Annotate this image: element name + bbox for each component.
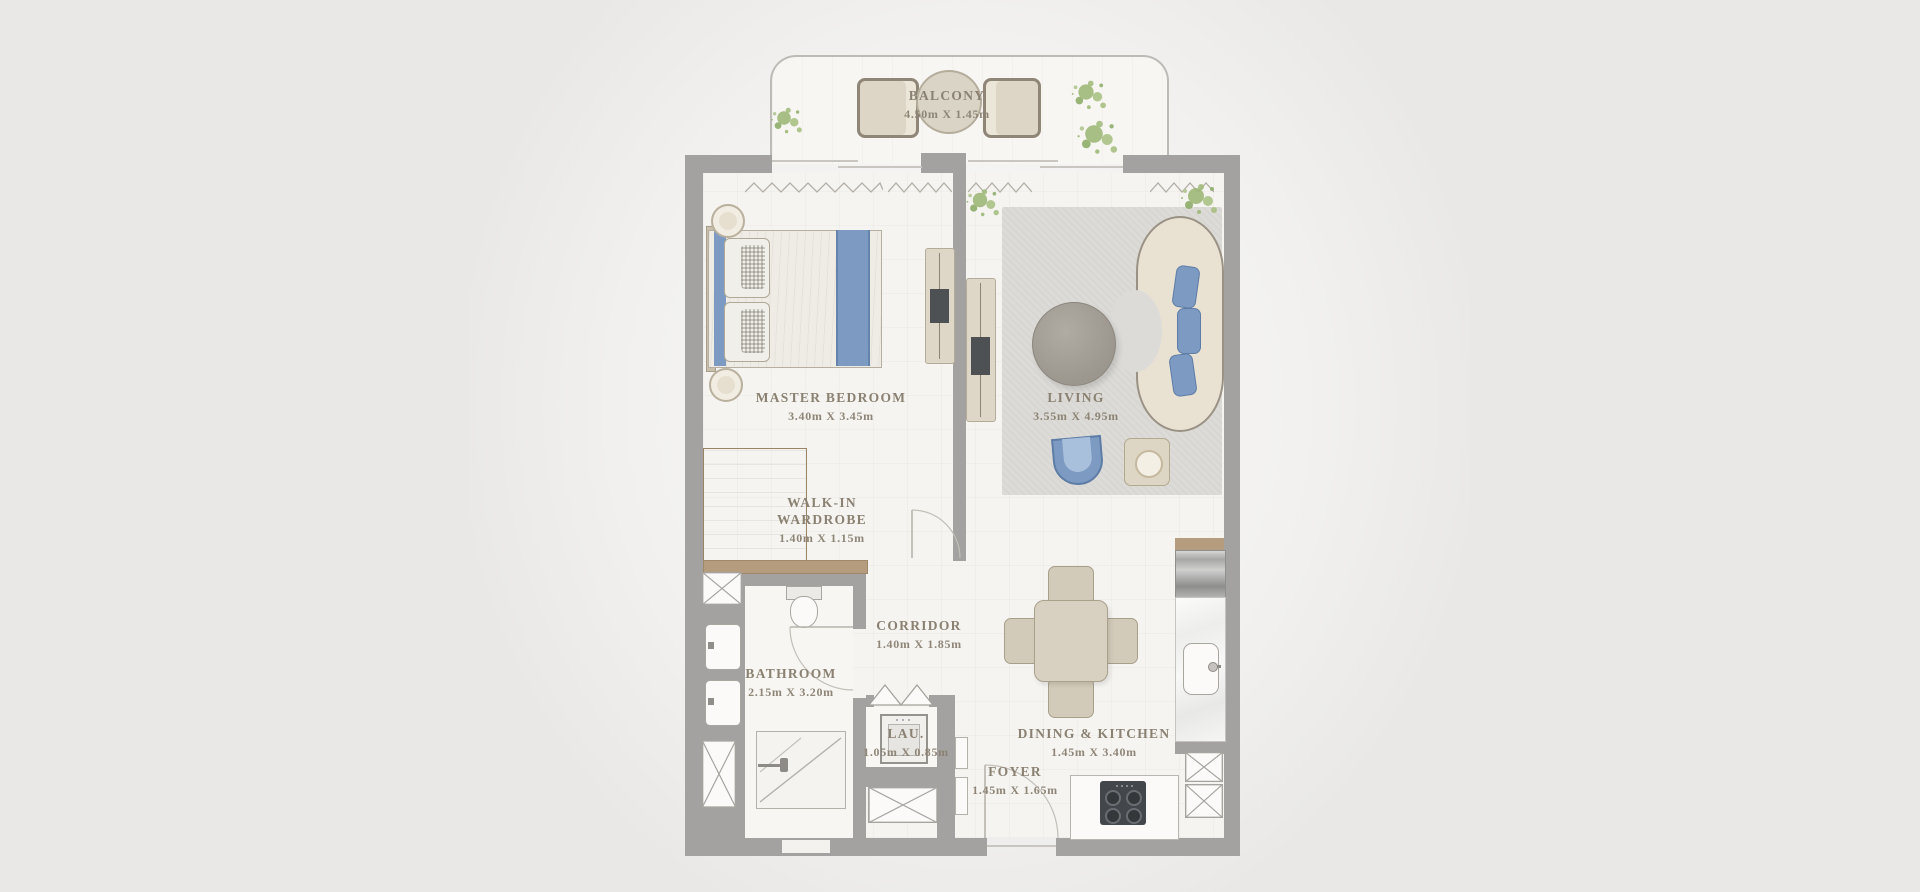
room-dims: 3.40m X 3.45m	[756, 409, 907, 424]
burner-icon	[1126, 808, 1142, 824]
label-foyer: FOYER 1.45m X 1.65m	[972, 764, 1058, 798]
cooktop-knob	[1131, 785, 1133, 787]
shaft-xbox	[1185, 752, 1223, 782]
shower-fixture-icon	[780, 758, 788, 772]
room-dims: 4.50m X 1.45m	[904, 107, 990, 122]
wall-bottom-left	[685, 838, 987, 856]
label-dining-kitchen: DINING & KITCHEN 1.45m X 3.40m	[1018, 726, 1171, 760]
wall-bottom-right	[1056, 838, 1240, 856]
curtain-icon	[745, 180, 883, 195]
room-name: DINING & KITCHEN	[1018, 726, 1171, 743]
bathroom-sink	[705, 680, 741, 726]
closet-door-panel	[955, 737, 968, 769]
balcony-lounge-chair-right	[983, 78, 1041, 138]
closet-door-panel	[955, 777, 968, 815]
cooktop-knob	[1116, 785, 1118, 787]
floorplan-canvas: BALCONY 4.50m X 1.45m MASTER BEDROOM 3.4…	[0, 0, 1920, 892]
sofa-curve-cutout	[1108, 290, 1162, 372]
burner-icon	[1105, 808, 1121, 824]
room-name: CORRIDOR	[876, 618, 962, 635]
tv-icon	[971, 337, 990, 375]
faucet-icon	[708, 698, 714, 705]
bifold-door-icon	[868, 681, 934, 707]
side-table-bowl	[1135, 450, 1163, 478]
room-dims: 1.40m X 1.85m	[876, 637, 962, 652]
bed-pillow	[724, 238, 770, 298]
curtain-icon	[888, 180, 952, 195]
wall-right	[1224, 155, 1240, 856]
nightstand	[709, 368, 743, 402]
wall-top-right	[1123, 155, 1240, 173]
sliding-door-line	[838, 166, 922, 168]
wall-bathroom-right-upper	[853, 572, 866, 629]
bed-pillow	[724, 302, 770, 362]
wall-niche	[782, 840, 830, 853]
label-balcony: BALCONY 4.50m X 1.45m	[904, 88, 990, 122]
washer-button	[902, 719, 904, 721]
room-name: LIVING	[1033, 390, 1119, 407]
plant-icon	[1078, 84, 1093, 99]
label-corridor: CORRIDOR 1.40m X 1.85m	[876, 618, 962, 652]
wall-left	[685, 155, 703, 856]
bed-blue-runner	[836, 230, 870, 366]
fridge	[1175, 550, 1226, 599]
kitchen-sink	[1183, 643, 1219, 695]
shaft-xbox	[702, 740, 736, 808]
cooktop-knob	[1126, 785, 1128, 787]
kitchen-cabinet-strip	[1175, 538, 1224, 550]
nightstand	[711, 204, 745, 238]
coffee-table	[1032, 302, 1116, 386]
room-dims: 3.55m X 4.95m	[1033, 409, 1119, 424]
wall-bathroom-right-lower	[853, 698, 866, 838]
sliding-door-line	[1040, 166, 1123, 168]
room-name: BATHROOM	[745, 666, 836, 683]
cooktop	[1100, 781, 1146, 825]
label-laundry: LAU. 1.05m X 0.85m	[863, 726, 949, 760]
bathroom-sink	[705, 624, 741, 670]
dining-table	[1034, 600, 1108, 682]
wall-laundry-bottom	[866, 767, 937, 787]
burner-icon	[1105, 790, 1121, 806]
faucet-base-icon	[1208, 662, 1218, 672]
entry-threshold-line	[987, 845, 1056, 847]
room-name: MASTER BEDROOM	[756, 390, 907, 407]
pillow-knit-texture	[741, 309, 765, 353]
tv-console-bedroom	[925, 248, 955, 364]
tv-icon	[930, 289, 949, 323]
label-walk-in-wardrobe: WALK-IN WARDROBE 1.40m X 1.15m	[763, 495, 881, 546]
label-living: LIVING 3.55m X 4.95m	[1033, 390, 1119, 424]
plant-icon	[1188, 188, 1204, 204]
pillow-knit-texture	[741, 245, 765, 289]
wardrobe-door-arc	[910, 508, 964, 562]
faucet-icon	[708, 642, 714, 649]
room-dims: 1.40m X 1.15m	[763, 531, 881, 546]
washer-button	[908, 719, 910, 721]
sliding-door-line	[772, 160, 858, 162]
label-bathroom: BATHROOM 2.15m X 3.20m	[745, 666, 836, 700]
plant-icon	[973, 193, 987, 207]
room-name: BALCONY	[904, 88, 990, 105]
dining-chair	[1048, 678, 1094, 718]
room-name: FOYER	[972, 764, 1058, 781]
sliding-door-line	[968, 160, 1058, 162]
burner-icon	[1126, 790, 1142, 806]
sofa-cushion	[1177, 308, 1201, 354]
side-table	[1124, 438, 1170, 486]
curtain-icon	[1150, 180, 1214, 195]
shower	[756, 731, 846, 809]
room-dims: 2.15m X 3.20m	[745, 685, 836, 700]
wall-laundry-right	[937, 695, 955, 838]
room-name: WALK-IN WARDROBE	[763, 495, 881, 529]
room-dims: 1.45m X 1.65m	[972, 783, 1058, 798]
tv-console-living	[966, 278, 996, 422]
shaft-xbox	[868, 787, 938, 823]
shaft-xbox	[702, 572, 742, 605]
room-dims: 1.45m X 3.40m	[1018, 745, 1171, 760]
toilet-icon	[790, 596, 818, 628]
plant-icon	[777, 111, 791, 125]
washer-button	[896, 719, 898, 721]
room-dims: 1.05m X 0.85m	[863, 745, 949, 760]
armchair	[1047, 430, 1110, 493]
shaft-xbox	[1185, 784, 1223, 818]
room-name: LAU.	[863, 726, 949, 743]
plant-icon	[1085, 125, 1103, 143]
label-master-bedroom: MASTER BEDROOM 3.40m X 3.45m	[756, 390, 907, 424]
cooktop-knob	[1121, 785, 1123, 787]
